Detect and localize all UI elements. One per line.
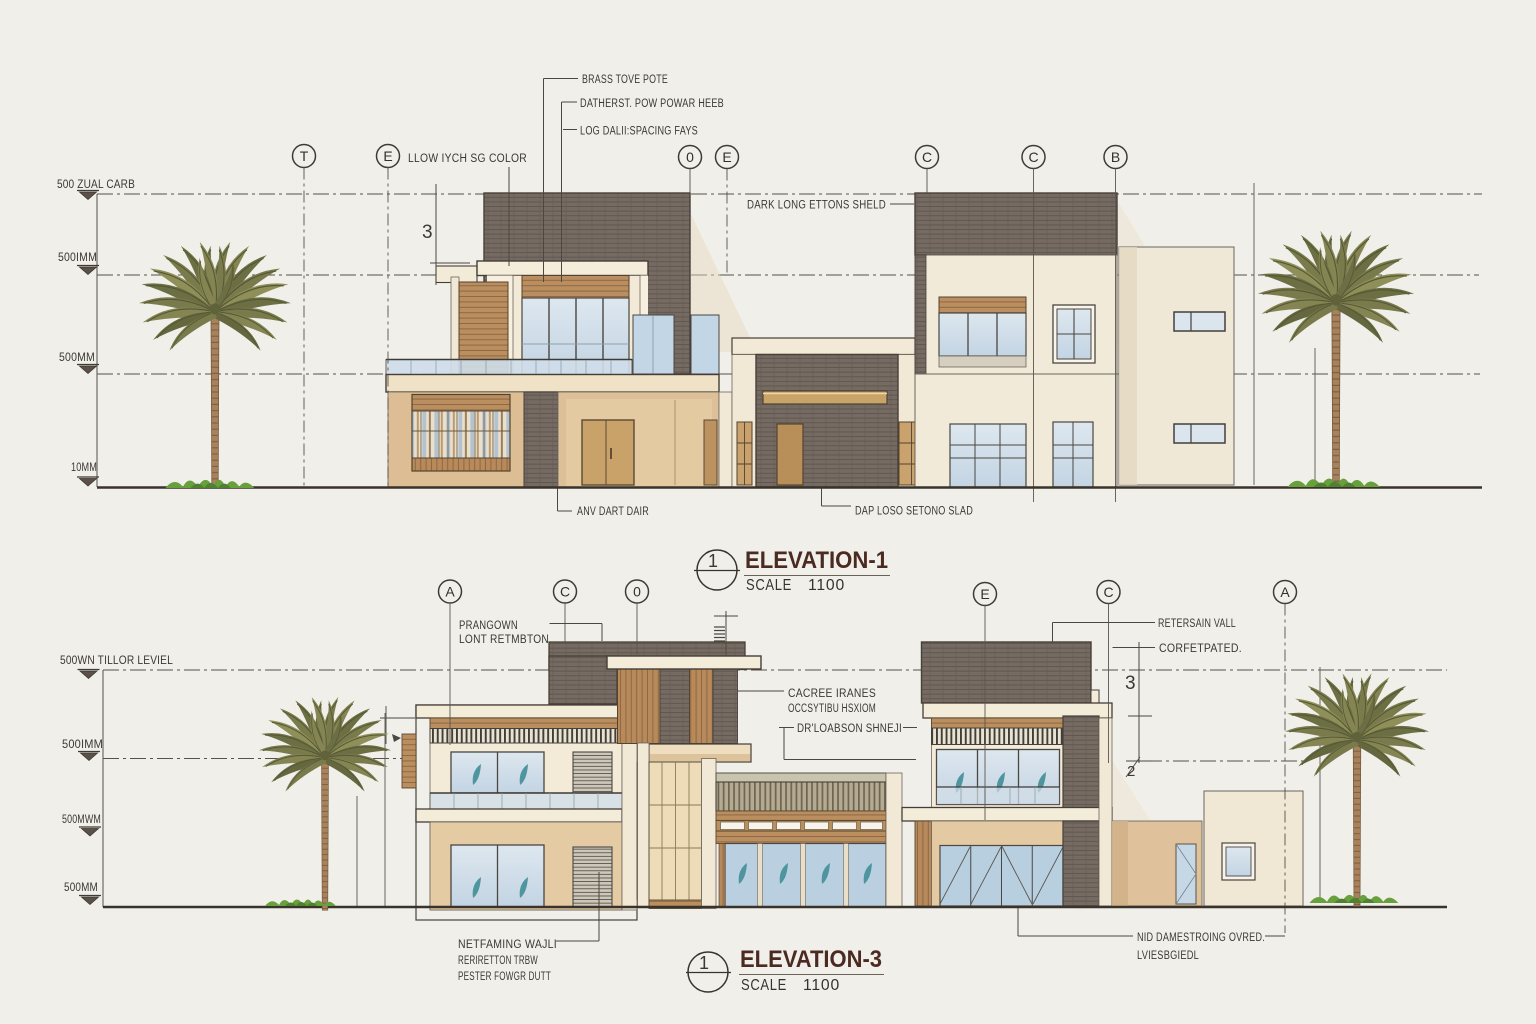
svg-text:ELEVATION-3: ELEVATION-3 <box>740 946 882 973</box>
svg-text:B: B <box>1111 149 1120 165</box>
svg-text:1100: 1100 <box>803 977 840 994</box>
svg-text:NETFAMING WAJLI: NETFAMING WAJLI <box>458 939 557 951</box>
svg-text:ANV DART DAIR: ANV DART DAIR <box>577 506 649 518</box>
svg-text:LVIESBGIEDL: LVIESBGIEDL <box>1137 950 1199 962</box>
svg-text:SCALE: SCALE <box>741 977 787 994</box>
svg-text:3: 3 <box>1125 673 1136 694</box>
svg-text:NID DAMESTROING OVRED.: NID DAMESTROING OVRED. <box>1137 932 1265 944</box>
svg-text:E: E <box>383 148 392 164</box>
svg-text:C: C <box>1103 584 1113 600</box>
svg-text:3: 3 <box>422 222 433 243</box>
svg-text:1: 1 <box>699 953 709 973</box>
svg-text:CACREE IRANES: CACREE IRANES <box>788 688 876 700</box>
svg-text:10MM: 10MM <box>71 462 97 474</box>
svg-text:500MM: 500MM <box>59 352 95 364</box>
svg-text:0: 0 <box>686 149 694 165</box>
svg-text:500IMM: 500IMM <box>62 739 103 751</box>
svg-text:LONT RETMBTON: LONT RETMBTON <box>459 634 549 646</box>
svg-text:E: E <box>722 149 731 165</box>
svg-text:OCCSYTIBU HSXIOM: OCCSYTIBU HSXIOM <box>788 703 876 715</box>
svg-text:BRASS TOVE POTE: BRASS TOVE POTE <box>582 74 668 86</box>
svg-text:1100: 1100 <box>808 577 845 594</box>
svg-text:LLOW IYCH SG COLOR: LLOW IYCH SG COLOR <box>408 153 527 165</box>
svg-text:PRANGOWN: PRANGOWN <box>459 620 518 632</box>
svg-text:C: C <box>922 149 932 165</box>
svg-text:CORFETPATED.: CORFETPATED. <box>1159 643 1242 655</box>
svg-text:DARK LONG ETTONS SHELD: DARK LONG ETTONS SHELD <box>747 200 886 212</box>
svg-text:PESTER FOWGR DUTT: PESTER FOWGR DUTT <box>458 971 551 983</box>
svg-text:1: 1 <box>708 551 718 571</box>
svg-text:DAP LOSO SETONO SLAD: DAP LOSO SETONO SLAD <box>855 506 973 518</box>
svg-text:500MM: 500MM <box>64 882 98 894</box>
svg-text:C: C <box>560 584 570 600</box>
svg-text:DATHERST. POW POWAR HEEB: DATHERST. POW POWAR HEEB <box>580 98 724 110</box>
svg-text:C: C <box>1028 149 1038 165</box>
svg-text:A: A <box>1280 584 1290 600</box>
svg-text:RERIRETTON TRBW: RERIRETTON TRBW <box>458 955 538 967</box>
svg-text:500WN TILLOR LEVIEL: 500WN TILLOR LEVIEL <box>60 655 173 667</box>
svg-text:DR'LOABSON SHNEJI: DR'LOABSON SHNEJI <box>797 723 902 735</box>
svg-text:E: E <box>980 586 989 602</box>
svg-text:500IMM: 500IMM <box>58 252 97 264</box>
svg-text:RETERSAIN VALL: RETERSAIN VALL <box>1158 618 1236 630</box>
svg-text:SCALE: SCALE <box>746 577 792 594</box>
svg-text:ELEVATION-1: ELEVATION-1 <box>745 547 888 574</box>
svg-text:T: T <box>300 148 309 164</box>
svg-text:LOG DALII:SPACING FAYS: LOG DALII:SPACING FAYS <box>580 126 698 138</box>
svg-text:500MWM: 500MWM <box>62 814 101 826</box>
svg-text:0: 0 <box>633 584 641 600</box>
svg-text:500 ZUAL CARB: 500 ZUAL CARB <box>57 179 135 191</box>
svg-text:A: A <box>445 584 455 600</box>
